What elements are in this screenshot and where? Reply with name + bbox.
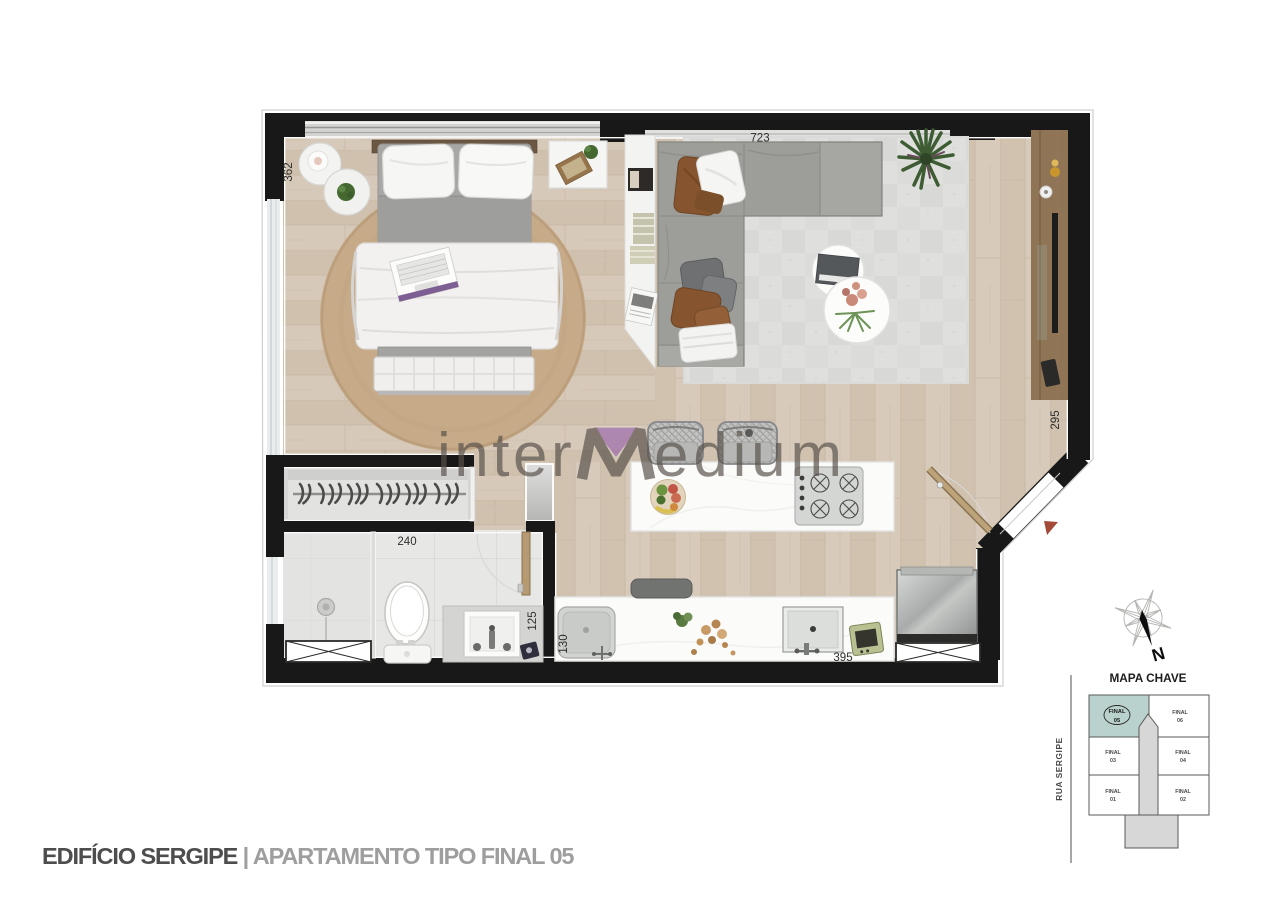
svg-text:04: 04 [1180, 758, 1186, 764]
svg-text:03: 03 [1110, 758, 1116, 764]
svg-text:FINAL: FINAL [1175, 789, 1191, 795]
svg-text:723: 723 [750, 133, 769, 145]
svg-text:125: 125 [527, 611, 539, 630]
svg-text:05: 05 [1114, 718, 1121, 724]
svg-text:FINAL: FINAL [1175, 750, 1191, 756]
svg-text:395: 395 [833, 652, 852, 664]
svg-text:MAPA CHAVE: MAPA CHAVE [1109, 671, 1186, 685]
svg-text:01: 01 [1110, 797, 1116, 803]
svg-text:130: 130 [558, 634, 570, 653]
svg-text:02: 02 [1180, 797, 1186, 803]
svg-text:RUA SERGIPE: RUA SERGIPE [1054, 737, 1064, 800]
svg-text:295: 295 [1050, 410, 1062, 429]
svg-text:EDIFÍCIO SERGIPE | APARTAMENTO: EDIFÍCIO SERGIPE | APARTAMENTO TIPO FINA… [42, 842, 574, 869]
svg-text:240: 240 [397, 536, 416, 548]
svg-text:edium: edium [654, 421, 847, 490]
svg-text:FINAL: FINAL [1172, 710, 1188, 716]
svg-text:FINAL: FINAL [1108, 709, 1126, 715]
svg-text:362: 362 [283, 162, 295, 181]
svg-text:06: 06 [1177, 718, 1183, 724]
svg-text:inter: inter [437, 421, 575, 490]
svg-text:FINAL: FINAL [1105, 789, 1121, 795]
svg-text:FINAL: FINAL [1105, 750, 1121, 756]
